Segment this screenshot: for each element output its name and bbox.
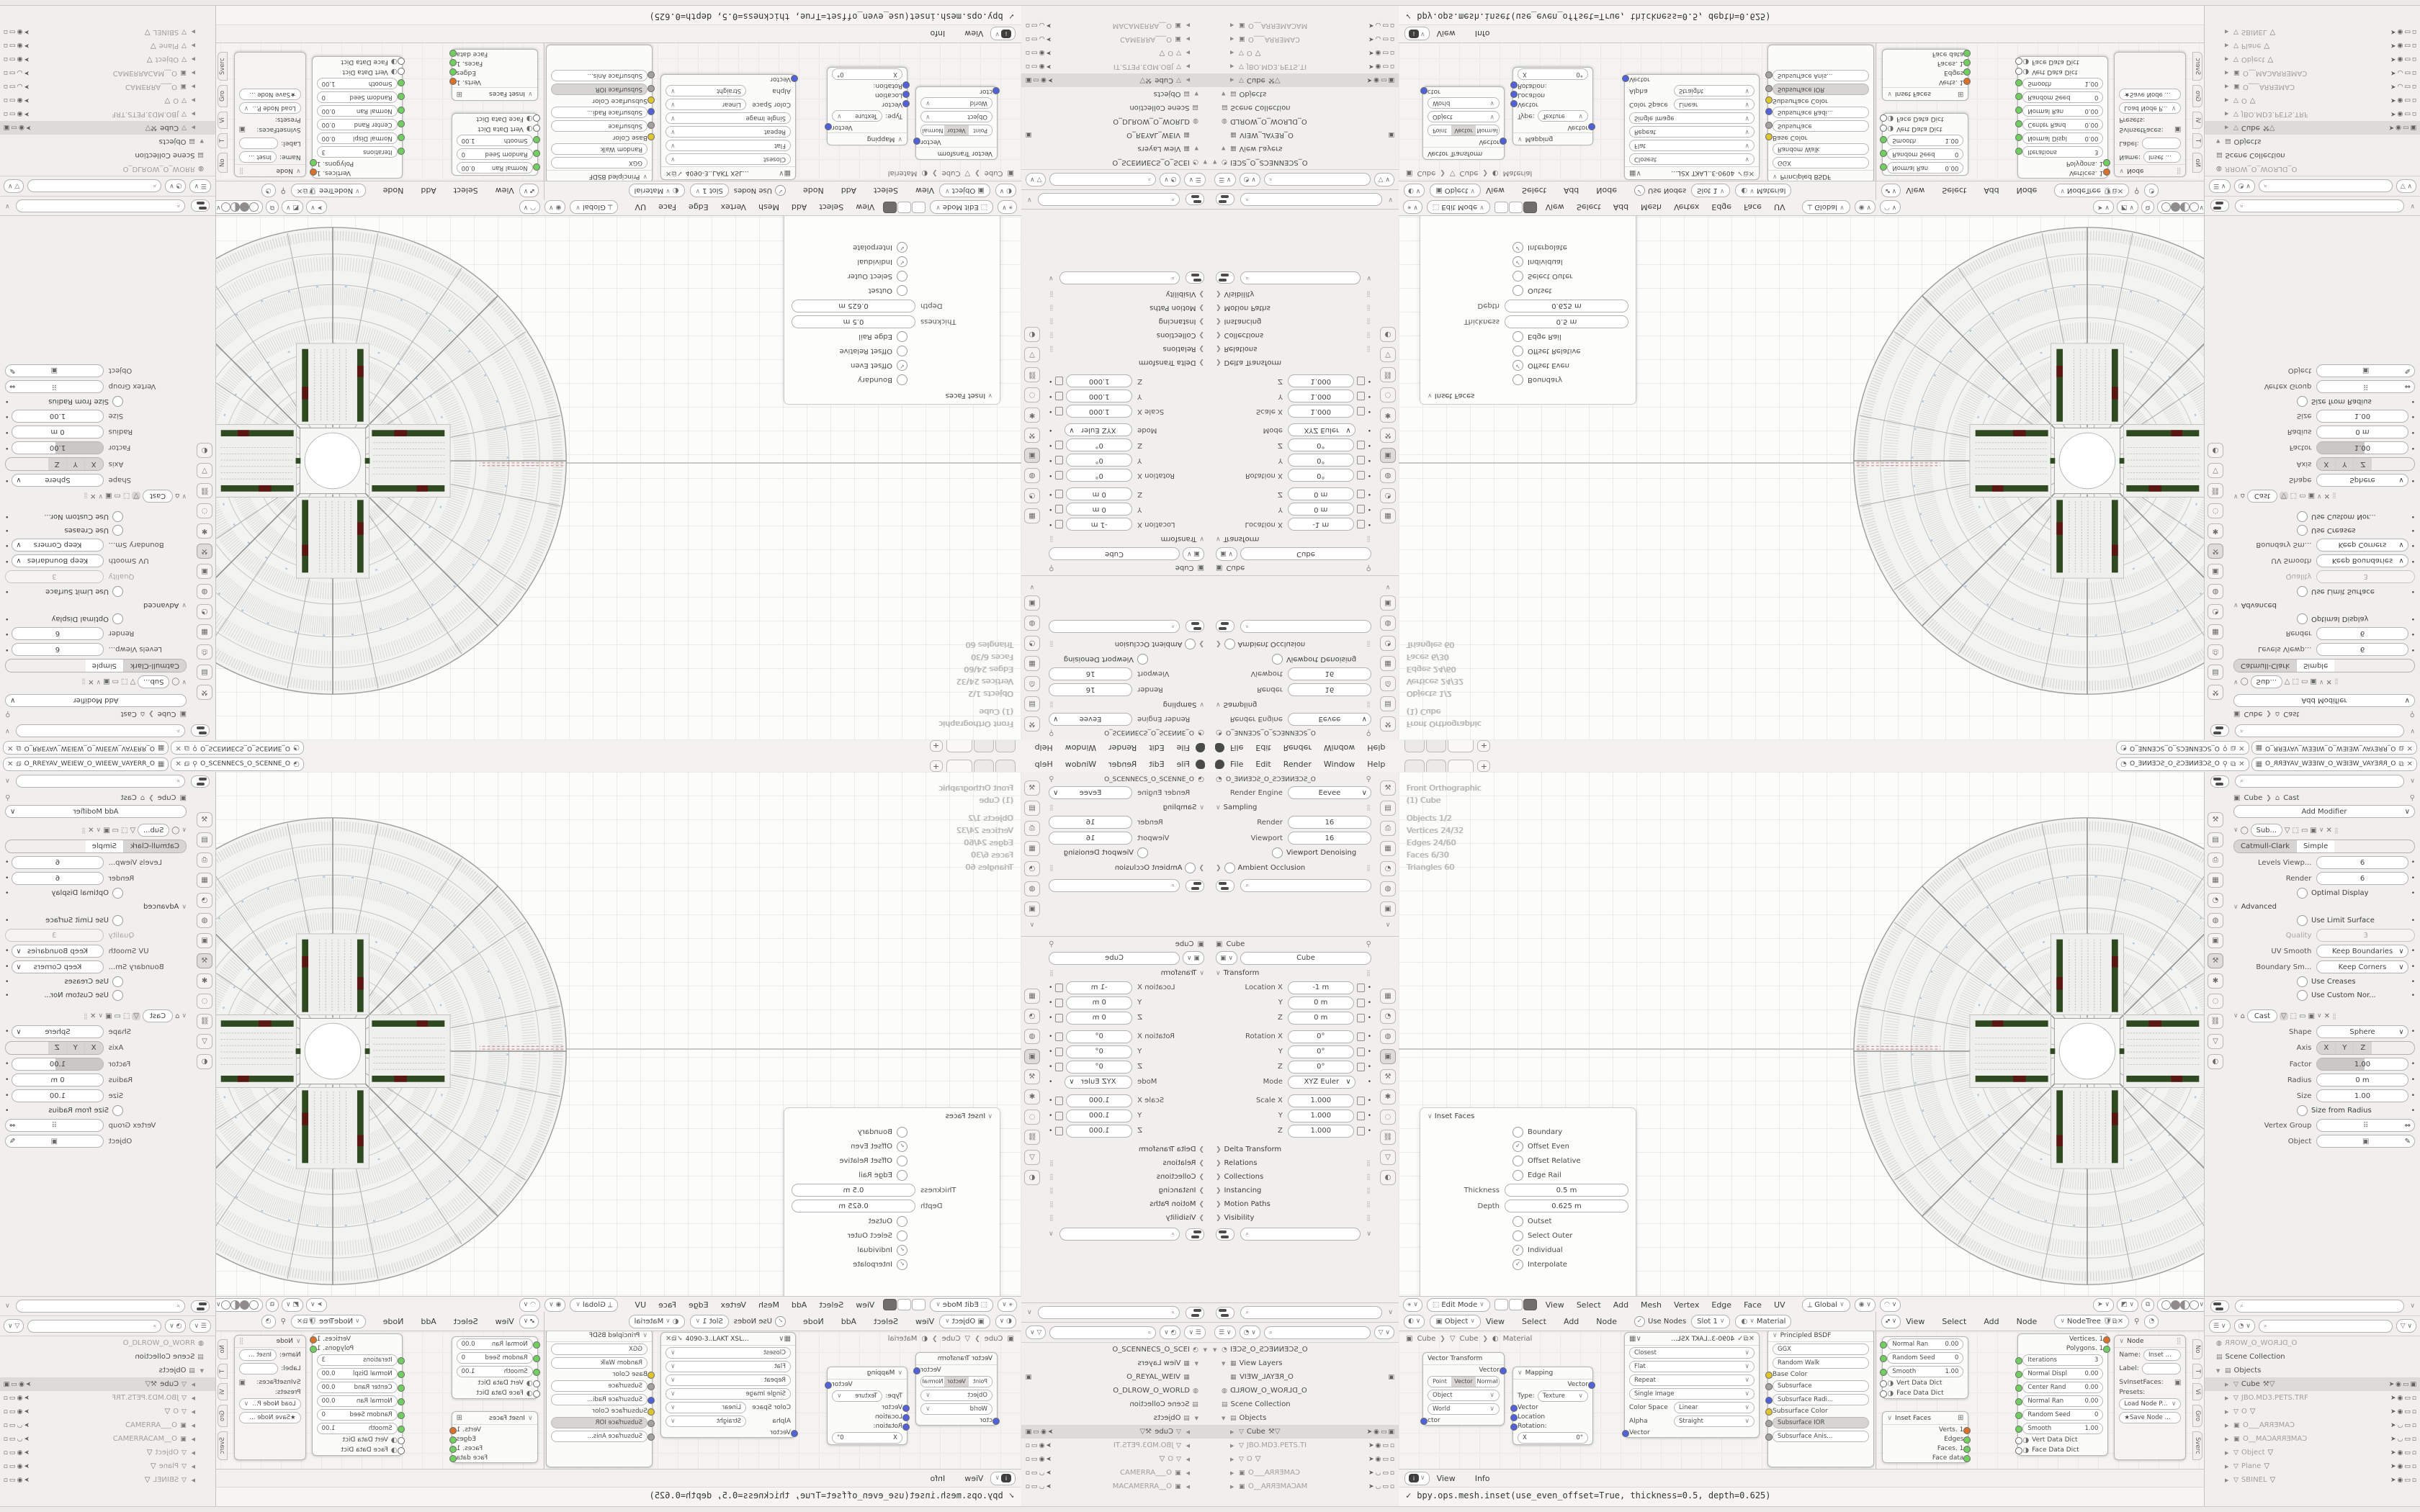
instancing-section[interactable]: ❯Instancing⣿ — [1043, 315, 1210, 328]
size-from-radius-checkbox[interactable] — [2297, 396, 2308, 407]
subsurface-ior-field[interactable]: Subsurface IOR — [551, 1417, 647, 1428]
add-modifier-button[interactable]: Add Modifier∨ — [2233, 805, 2415, 818]
cast-object-field[interactable]: ▣✎ — [2316, 1135, 2415, 1148]
use-limit-surface-checkbox[interactable] — [2297, 586, 2308, 597]
visibility-icons[interactable]: ➤◉▭▫ — [2390, 42, 2418, 50]
outliner-search-input[interactable]: ⌕ — [2259, 1320, 2393, 1333]
visibility-icons[interactable]: ➤◉▭▫ — [1024, 1456, 1052, 1463]
socket-green[interactable] — [1880, 150, 1887, 158]
loc-x-field[interactable]: -1 m — [1288, 518, 1354, 531]
copy-icon[interactable]: ⧉ — [2231, 744, 2236, 752]
menu-node[interactable]: Node — [2017, 186, 2038, 196]
cast-radius-field[interactable]: 0 m — [12, 1074, 103, 1086]
levels-render-field[interactable]: 6 — [12, 872, 103, 885]
snap-icon[interactable]: ◉ ∨ — [544, 201, 565, 215]
socket-dict[interactable] — [398, 58, 405, 65]
workspace-tab[interactable] — [1426, 760, 1446, 772]
socket-vector-in[interactable] — [992, 1418, 1000, 1425]
iterations-field[interactable]: Iterations3 — [317, 147, 398, 158]
node-inset-faces[interactable]: ∨Inset Faces⊞ Verts. 1 Edges Faces. 1 Fa… — [452, 49, 538, 101]
socket-subsurface-aniso[interactable] — [647, 72, 655, 79]
outliner-row[interactable]: ▶▽JBO.MD3.PETS.TRF➤◉▭▫ — [0, 1391, 215, 1405]
individual-checkbox[interactable] — [1512, 257, 1523, 268]
random-seed-field[interactable]: Random Seed0 — [457, 1352, 533, 1364]
menu-vertex[interactable]: Vertex — [721, 1300, 746, 1310]
uv-smooth-select[interactable]: Keep Boundaries∨ — [12, 554, 103, 567]
offset-even-checkbox[interactable] — [897, 361, 907, 372]
tab-data-icon[interactable]: ▽ — [1380, 1150, 1396, 1165]
menu-view[interactable]: View — [856, 203, 874, 212]
outliner-search-input[interactable]: ⌕ — [27, 1320, 161, 1333]
center-rand-field[interactable]: Center Rand0.00 — [317, 120, 398, 131]
menu-edge[interactable]: Edge — [1711, 203, 1731, 212]
close-icon[interactable]: ✕ — [2407, 744, 2413, 752]
search-input[interactable]: ⌕ — [1240, 271, 1361, 284]
menu-view[interactable]: View — [1546, 1300, 1564, 1310]
tab-physics-icon[interactable]: ◌ — [1024, 387, 1040, 402]
subsurface-ior-field[interactable]: Subsurface IOR — [1773, 84, 1869, 96]
interpolate-checkbox[interactable] — [1512, 1259, 1523, 1270]
cast-object-field[interactable]: ▣✎ — [2316, 364, 2415, 377]
visibility-icons[interactable]: ➤◉▭▫ — [2, 111, 30, 118]
node-label-field[interactable] — [2142, 138, 2182, 150]
nodetree-selector[interactable]: ∨NodeTree🛡⧉✕ — [291, 1315, 366, 1328]
slot-select[interactable]: Slot 1∨ — [1691, 1315, 1730, 1328]
tab-scene-icon[interactable]: ◔ — [197, 893, 212, 908]
proportional-edit-icon[interactable]: ◠ ∨ — [1880, 1298, 1901, 1312]
levels-viewport-field[interactable]: 6 — [2316, 643, 2408, 656]
tab-group[interactable]: Gro — [218, 1405, 228, 1427]
display-mode-select[interactable]: ☰ ∨ — [189, 179, 211, 193]
visibility-icons[interactable]: ➤◉▭▫ — [2390, 29, 2418, 36]
rendered-shading-icon[interactable] — [221, 203, 230, 212]
outliner-row-camera[interactable]: ▶▣MACAMERRA__O➤◡▭▫ — [1021, 19, 1210, 32]
search-input[interactable]: ⌕ — [1059, 1228, 1180, 1241]
chevron-down-icon[interactable]: ∨ — [1049, 274, 1054, 282]
socket-subsurface-aniso[interactable] — [647, 1434, 655, 1441]
viewlayer-selector[interactable]: ▦ O_RREYAV_WEIEW_O_WIEEW_VAYERR_O ⧉ ✕ — [3, 742, 169, 755]
tab-scene-icon[interactable]: ◔ — [1024, 488, 1040, 503]
normal-ran-field[interactable]: Normal Ran0.00 — [2022, 1395, 2103, 1407]
menu-file[interactable]: File — [1230, 744, 1243, 753]
socket-green[interactable] — [2015, 135, 2022, 142]
uv-smooth-select[interactable]: Keep Boundaries∨ — [12, 945, 103, 958]
tab-data-icon[interactable]: ▽ — [2208, 1034, 2223, 1049]
vt-convert-to-select[interactable]: World∨ — [1428, 1403, 1500, 1415]
filter-toggle-icon[interactable] — [191, 725, 210, 737]
thickness-field[interactable]: 0.5 m — [1505, 315, 1628, 328]
nodetree-selector[interactable]: ∨NodeTree🛡⧉✕ — [291, 184, 366, 198]
menu-add[interactable]: Add — [1613, 1300, 1628, 1310]
tab-node[interactable]: No — [2192, 1339, 2202, 1359]
menu-view[interactable]: View — [1546, 203, 1564, 212]
menu-select[interactable]: Select — [819, 1300, 843, 1310]
subsurface-ior-field[interactable]: Subsurface IOR — [551, 84, 647, 96]
tab-sverchok[interactable]: Sverc — [218, 1431, 228, 1460]
chevron-down-icon[interactable]: ∨ — [2410, 778, 2415, 785]
menu-add[interactable]: Add — [1984, 1317, 1999, 1326]
chevron-down-icon[interactable]: ∨ — [5, 1302, 10, 1310]
menu-view[interactable]: View — [1486, 1317, 1505, 1326]
center-rand-field[interactable]: Center Rand0.00 — [2022, 120, 2103, 131]
delete-modifier-icon[interactable]: ✕ — [88, 827, 94, 834]
socket-rotation-in[interactable] — [902, 1423, 910, 1431]
viewport-toggle-icon[interactable]: ▭ — [2299, 492, 2305, 500]
menu-view[interactable]: View — [964, 30, 983, 39]
tab-particles-icon[interactable]: ✱ — [2208, 523, 2223, 539]
extension-select[interactable]: Repeat∨ — [1629, 127, 1754, 138]
scale-x-field[interactable]: 1.000 — [1288, 405, 1354, 418]
socket-vector-in[interactable] — [1622, 1430, 1629, 1437]
transform-section[interactable]: ∨Transform⣿ — [1210, 966, 1377, 980]
smooth-field[interactable]: Smooth1.00 — [1887, 1366, 1963, 1377]
realtime-toggle-icon[interactable]: ⬚ — [2290, 1012, 2297, 1020]
socket-vertices-out[interactable] — [2103, 1336, 2110, 1344]
tab-object-icon[interactable]: ▣ — [2208, 564, 2223, 579]
visibility-icons[interactable]: ➤◉▭▫ — [1368, 63, 1396, 71]
render-icon[interactable]: ▣ — [1388, 132, 1396, 139]
lock-icon[interactable] — [1055, 456, 1063, 465]
object-type-icon[interactable]: ▣ ∨ — [1216, 547, 1237, 561]
individual-checkbox[interactable] — [1512, 1245, 1523, 1256]
outliner-row[interactable]: ▶▽SBINEL▽➤◉▭▫ — [2205, 1473, 2420, 1487]
socket-subsurface-ior[interactable] — [647, 1420, 655, 1427]
tab-data-icon[interactable]: ▽ — [197, 1034, 212, 1049]
filter-toggle-icon[interactable] — [1216, 272, 1234, 284]
display-mode-select[interactable]: ☰ ∨ — [1214, 1326, 1236, 1339]
close-icon[interactable]: ✕ — [7, 760, 13, 768]
tab-modifiers-icon-active[interactable]: ⚒ — [2208, 953, 2223, 968]
menu-select[interactable]: Select — [454, 1317, 478, 1326]
lock-icon[interactable] — [1055, 377, 1063, 386]
use-limit-surface-checkbox[interactable] — [112, 915, 123, 926]
menu-info[interactable]: Info — [1475, 30, 1490, 39]
geometry-node-editor[interactable]: 🙾 ∨ View Select Add Node ∨NodeTree🛡⧉✕ ⚲ … — [216, 43, 544, 200]
delete-modifier-icon[interactable]: ✕ — [2326, 827, 2331, 834]
visibility-icons[interactable]: ➤◡▭▫ — [1024, 36, 1052, 43]
menu-vertex[interactable]: Vertex — [721, 203, 746, 212]
ambient-occlusion-section[interactable]: ❯ Ambient Occlusion⣿ — [1043, 636, 1210, 652]
socket-vector-in[interactable] — [791, 76, 798, 83]
outliner-row-camera[interactable]: ▶▣CAMERRA___O➤◡▭▫ — [1021, 32, 1210, 46]
visibility-icons[interactable]: ➤◉▭▫ — [2, 42, 30, 50]
select-outer-checkbox[interactable] — [1512, 1230, 1523, 1241]
mode-select[interactable]: ⬚Edit Mode∨ — [1427, 1298, 1490, 1312]
tab-sverchok[interactable]: Sverc — [218, 52, 228, 81]
rot-x-field[interactable]: 0° — [1066, 1030, 1132, 1043]
menu-info[interactable]: Info — [930, 1474, 945, 1483]
tab-world-icon[interactable]: ◍ — [1380, 1029, 1396, 1044]
geometry-node-editor[interactable]: 🙾 ∨ View Select Add Node ∨NodeTree🛡⧉✕ ⚲ … — [216, 1312, 544, 1469]
use-nodes-checkbox[interactable] — [1634, 186, 1645, 197]
tab-render-icon[interactable]: ▤ — [1380, 801, 1396, 816]
cast-axis-buttons[interactable]: XYZ — [5, 457, 104, 471]
lock-icon[interactable] — [1055, 984, 1063, 992]
socket-subsurface[interactable] — [647, 1383, 655, 1390]
lock-icon[interactable] — [1055, 1127, 1063, 1135]
object-name-field[interactable]: Cube — [1049, 952, 1180, 965]
visibility-icons[interactable]: ➤◉▭▫ — [2, 1463, 30, 1470]
uv-smooth-select[interactable]: Keep Boundaries∨ — [2316, 554, 2408, 567]
normal-ran-field[interactable]: Normal Ran0.00 — [1887, 1338, 1963, 1350]
subsurface-radius-field[interactable]: Subsurface Radi... — [551, 1394, 647, 1405]
shader-type-select[interactable]: ▣Object∨ — [939, 1315, 990, 1328]
object-type-icon[interactable]: ▣ ∨ — [1216, 951, 1237, 965]
rendered-shading-icon[interactable] — [2190, 1300, 2199, 1310]
scene-selector[interactable]: ◔ O_SCENNECS_O_SCENNE_O ⚲ ⧉ ✕ — [2116, 742, 2249, 755]
shader-editor[interactable]: ◐ ∨ ▣Object∨ View Select Add Node Use No… — [544, 1312, 1021, 1469]
tab-viewlayer-icon[interactable]: ▦ — [1024, 508, 1040, 523]
tab-viewlayer-icon[interactable]: ▦ — [1024, 841, 1040, 856]
socket-vector-out[interactable] — [825, 1382, 832, 1389]
offset-even-checkbox[interactable] — [1512, 361, 1523, 372]
lock-icon[interactable] — [1357, 1014, 1365, 1022]
rot-x-field[interactable]: 0° — [1288, 1030, 1354, 1043]
ambient-occlusion-section[interactable]: ❯ Ambient Occlusion⣿ — [1210, 860, 1377, 876]
transform-orientation-select[interactable]: ⟂Global∨ — [1802, 201, 1850, 215]
tab-world-icon[interactable]: ◍ — [1380, 468, 1396, 483]
socket-facedata-out[interactable] — [1963, 50, 1971, 58]
visibility-icons[interactable]: ➤◉▭▫ — [1024, 63, 1052, 71]
visibility-icons[interactable]: ➤◡▭▫ — [1368, 22, 1396, 30]
chevron-down-icon[interactable]: ∨ — [1366, 1230, 1371, 1238]
outliner-row-objects[interactable]: ▼▤Objects — [1021, 1411, 1210, 1425]
socket-vertices-out[interactable] — [310, 1336, 317, 1344]
cast-shape-select[interactable]: Sphere∨ — [12, 474, 103, 487]
socket-subsurface-aniso[interactable] — [1765, 1434, 1773, 1441]
close-icon[interactable]: ✕ — [2238, 744, 2244, 752]
menu-add[interactable]: Add — [421, 186, 436, 196]
subsurf-name-field[interactable]: Sub... — [2251, 824, 2282, 837]
render-engine-select[interactable]: Eevee∨ — [1049, 713, 1132, 726]
outliner-row[interactable]: ▶▽JBO.MD3.PETS.TI➤◉▭▫ — [1210, 1439, 1399, 1452]
pin-icon[interactable]: ⚲ — [1366, 775, 1371, 783]
socket-dict[interactable] — [2015, 1437, 2022, 1444]
outliner-row[interactable]: ▶▽Object▽➤◉▭▫ — [2205, 53, 2420, 66]
proportional-edit-icon[interactable]: ◠ ∨ — [519, 201, 540, 215]
samples-viewport-field[interactable]: 16 — [1049, 667, 1132, 680]
pin-icon[interactable]: ⚲ — [2223, 760, 2228, 768]
material-selector[interactable]: ◐∨Material — [629, 184, 685, 198]
socket-green[interactable] — [533, 137, 540, 144]
vt-convert-from-select[interactable]: Object∨ — [1428, 112, 1500, 123]
delete-modifier-icon[interactable]: ✕ — [90, 492, 96, 500]
visibility-icons[interactable]: ➤◡▭▫ — [2390, 1436, 2418, 1443]
extension-select[interactable]: Repeat∨ — [665, 1374, 791, 1386]
alpha-select[interactable]: Straight∨ — [665, 1416, 746, 1427]
image-name-field[interactable]: 4090-3..LAKT XSL... — [686, 170, 776, 177]
levels-viewport-field[interactable]: 6 — [12, 643, 103, 656]
menu-help[interactable]: Help — [1035, 744, 1053, 753]
copy-icon[interactable]: ⧉ — [184, 760, 189, 768]
mode-select[interactable]: ⬚Edit Mode∨ — [930, 201, 993, 215]
tab-physics-icon[interactable]: ◌ — [197, 994, 212, 1009]
subsurface-aniso-field[interactable]: Subsurface Anis... — [1773, 1431, 1869, 1442]
subsurface-field[interactable]: Subsurface — [551, 121, 647, 132]
menu-edit[interactable]: Edit — [1255, 760, 1270, 769]
transform-orientation-select[interactable]: ⟂Global∨ — [570, 1298, 618, 1312]
copy-icon[interactable]: ⧉ — [2398, 744, 2403, 752]
material-shading-icon[interactable] — [230, 1300, 240, 1310]
tab-physics-icon[interactable]: ◌ — [197, 503, 212, 518]
menu-view[interactable]: View — [496, 1317, 514, 1326]
boundary-checkbox[interactable] — [897, 1127, 907, 1138]
distribution-select[interactable]: GGX — [1773, 158, 1869, 169]
use-creases-checkbox[interactable] — [2297, 525, 2308, 536]
alpha-select[interactable]: Straight∨ — [1674, 86, 1754, 97]
outliner-row-cube[interactable]: ▶▽Cube⚒▽➤◉▭▣ — [1021, 1425, 1210, 1439]
realtime-toggle-icon[interactable]: ⬚ — [2293, 678, 2299, 686]
solid-shading-icon[interactable] — [2171, 203, 2180, 212]
pin-icon[interactable]: ⚲ — [281, 1318, 286, 1326]
shading-mode-buttons[interactable]: ∨ — [2157, 1298, 2208, 1312]
select-outer-checkbox[interactable] — [897, 1230, 907, 1241]
lock-icon[interactable] — [1357, 490, 1365, 499]
render-toggle-icon[interactable]: ▣ — [105, 1012, 112, 1020]
transform-orientation-select[interactable]: ⟂Global∨ — [1802, 1298, 1850, 1312]
mapping-type-select[interactable]: Texture∨ — [832, 1390, 882, 1402]
tab-tool[interactable]: T — [218, 1364, 228, 1379]
menu-view[interactable]: View — [856, 1300, 874, 1310]
outliner-row-camera[interactable]: ▶▣CAMERRACAM__O➤◡▭▫ — [2205, 1432, 2420, 1446]
wireframe-shading-icon[interactable] — [249, 1300, 259, 1310]
visibility-icons[interactable]: ➤◡▭▫ — [2, 1422, 30, 1429]
relations-section[interactable]: ❯Relations⣿ — [1210, 1156, 1377, 1170]
smooth-field[interactable]: Smooth1.00 — [457, 135, 533, 147]
delete-modifier-icon[interactable]: ✕ — [88, 678, 94, 686]
node-sv-inset-params[interactable]: Normal Ran0.00 Random Seed0 Smooth1.00 ◑… — [1882, 1336, 1968, 1399]
viewport-denoising-checkbox[interactable] — [1137, 847, 1148, 858]
tab-object-icon[interactable]: ▣ — [1024, 595, 1040, 611]
edge-rail-checkbox[interactable] — [1512, 332, 1523, 343]
visibility-icons[interactable]: ➤◡▭▫ — [1368, 1483, 1396, 1490]
menu-add[interactable]: Add — [792, 203, 807, 212]
visibility-icons[interactable]: ➤◉▭▫ — [2390, 56, 2418, 63]
render-toggle-icon[interactable]: ▣ — [2310, 678, 2316, 686]
tab-modifiers-icon[interactable]: ⚒ — [1024, 428, 1040, 443]
render-engine-select[interactable]: Eevee∨ — [1288, 713, 1371, 726]
socket-vertices-out[interactable] — [2103, 169, 2110, 176]
lock-icon[interactable] — [1357, 1063, 1365, 1071]
filter-funnel-icon[interactable]: ▽ ∨ — [1026, 173, 1046, 186]
cast-factor-slider[interactable]: 1.00 — [2316, 1058, 2408, 1071]
individual-checkbox[interactable] — [897, 1245, 907, 1256]
node-inset-faces[interactable]: ∨Inset Faces⊞ Verts. 1 Edges Faces. 1 Fa… — [1882, 1411, 1968, 1463]
visibility-icons[interactable]: ➤◡▭▫ — [1368, 1470, 1396, 1477]
display-mode-select[interactable]: ☰ ∨ — [2209, 179, 2231, 193]
cast-name-field[interactable]: Cast — [143, 490, 173, 503]
socket-faces-out[interactable] — [449, 1446, 457, 1453]
tab-output-icon[interactable]: ⎙ — [2208, 644, 2223, 660]
search-input[interactable]: ⌕ — [1038, 1306, 1180, 1319]
visibility-icons[interactable]: ➤◉▭▫ — [1368, 1456, 1396, 1463]
normal-ran-field[interactable]: Normal Ran0.00 — [2022, 106, 2103, 117]
socket-dict[interactable] — [1880, 125, 1887, 132]
tab-viewlayer-icon[interactable]: ▦ — [1024, 989, 1040, 1004]
viewport-toggle-icon[interactable]: ▭ — [112, 678, 119, 686]
socket-vector-in[interactable] — [992, 88, 1000, 95]
socket-subsurface-radius[interactable] — [1765, 109, 1773, 116]
lock-icon[interactable] — [1357, 1097, 1365, 1105]
menu-render[interactable]: Render — [1283, 744, 1312, 753]
vt-convert-to-select[interactable]: World∨ — [920, 1403, 992, 1415]
chevron-down-icon[interactable]: ∨ — [1388, 1309, 1393, 1316]
use-nodes-checkbox[interactable] — [1634, 1316, 1645, 1327]
menu-select[interactable]: Select — [874, 1317, 898, 1326]
outliner-row-camera[interactable]: ▶▣CAMERRA___O➤◡▭▫ — [1210, 1466, 1399, 1480]
outliner-row-scene-collection[interactable]: ▤Scene Collection — [0, 1350, 215, 1364]
solid-shading-icon[interactable] — [240, 203, 249, 212]
random-seed-field[interactable]: Random Seed0 — [2022, 92, 2103, 104]
tab-scene-icon[interactable]: ◔ — [1380, 1009, 1396, 1024]
viewport-denoising-checkbox[interactable] — [1272, 847, 1283, 858]
tab-modifiers-icon-active[interactable]: ⚒ — [197, 953, 212, 968]
subdivision-type-segment[interactable]: Catmull-ClarkSimple — [5, 659, 187, 672]
xray-icon[interactable]: ⧉ — [2141, 1298, 2154, 1312]
use-nodes-checkbox[interactable] — [775, 1316, 786, 1327]
tab-group[interactable]: Gro — [2192, 1405, 2202, 1427]
tab-render-icon[interactable]: ▤ — [1024, 801, 1040, 816]
cast-axis-buttons[interactable]: XYZ — [2316, 1041, 2415, 1055]
chevron-down-icon[interactable]: ∨ — [5, 727, 10, 734]
alpha-select[interactable]: Straight∨ — [1674, 1416, 1754, 1427]
menu-add[interactable]: Add — [421, 1317, 436, 1326]
socket-dict[interactable] — [398, 1437, 405, 1444]
extension-select[interactable]: Repeat∨ — [1629, 1374, 1754, 1386]
socket-subsurface[interactable] — [1765, 122, 1773, 130]
tab-data-icon[interactable]: ▽ — [1024, 1150, 1040, 1165]
pin-icon[interactable]: ⚲ — [1049, 729, 1054, 737]
editor-type-icon[interactable]: 🙾 ∨ — [519, 184, 539, 198]
tab-world-icon[interactable]: ◍ — [1024, 468, 1040, 483]
shading-mode-buttons[interactable]: ∨ — [212, 1298, 263, 1312]
socket-vector-in[interactable] — [902, 101, 910, 108]
socket-subsurface-aniso[interactable] — [1765, 72, 1773, 79]
tab-output-icon[interactable]: ⎙ — [1024, 676, 1040, 691]
edit-mode-toggle-icon[interactable]: ▽ — [2280, 1012, 2288, 1020]
tab-tool[interactable]: T — [2192, 1364, 2202, 1379]
rot-z-field[interactable]: 0° — [1288, 439, 1354, 452]
tab-world-icon[interactable]: ◍ — [1380, 881, 1396, 896]
display-mode-select[interactable]: ☰ ∨ — [1184, 1326, 1206, 1339]
tab-view[interactable]: Vi — [218, 1383, 228, 1400]
socket-subsurface-ior[interactable] — [647, 86, 655, 93]
socket-green[interactable] — [2015, 1398, 2022, 1405]
tab-constraints-icon[interactable]: ⛓ — [1380, 367, 1396, 382]
pin-icon[interactable]: ⚲ — [1049, 940, 1054, 948]
face-select-button[interactable] — [1523, 202, 1537, 213]
socket-vector-out[interactable] — [913, 138, 920, 145]
interpolation-select[interactable]: Closest∨ — [665, 1347, 791, 1359]
projection-select[interactable]: Flat∨ — [665, 140, 791, 152]
socket-green[interactable] — [2015, 1371, 2022, 1378]
socket-subsurface-color[interactable] — [1765, 1408, 1773, 1416]
extension-select[interactable]: Repeat∨ — [665, 127, 791, 138]
samples-viewport-field[interactable]: 16 — [1288, 667, 1371, 680]
select-outer-checkbox[interactable] — [1512, 271, 1523, 282]
wireframe-shading-icon[interactable] — [249, 203, 259, 212]
ao-checkbox[interactable] — [1185, 639, 1196, 649]
menu-render[interactable]: Render — [1108, 744, 1137, 753]
cast-shape-select[interactable]: Sphere∨ — [2316, 474, 2408, 487]
socket-vector-in[interactable] — [902, 1405, 910, 1412]
menu-render[interactable]: Render — [1108, 760, 1137, 769]
outliner-row-scene-collection[interactable]: ▤Scene Collection — [0, 148, 215, 162]
lock-icon[interactable] — [1055, 408, 1063, 416]
menu-view[interactable]: View — [915, 186, 934, 196]
menu-select[interactable]: Select — [1942, 186, 1966, 196]
viewport-3d[interactable]: Front Orthographic(1) Cube Objects 1/2Ve… — [216, 216, 1021, 740]
